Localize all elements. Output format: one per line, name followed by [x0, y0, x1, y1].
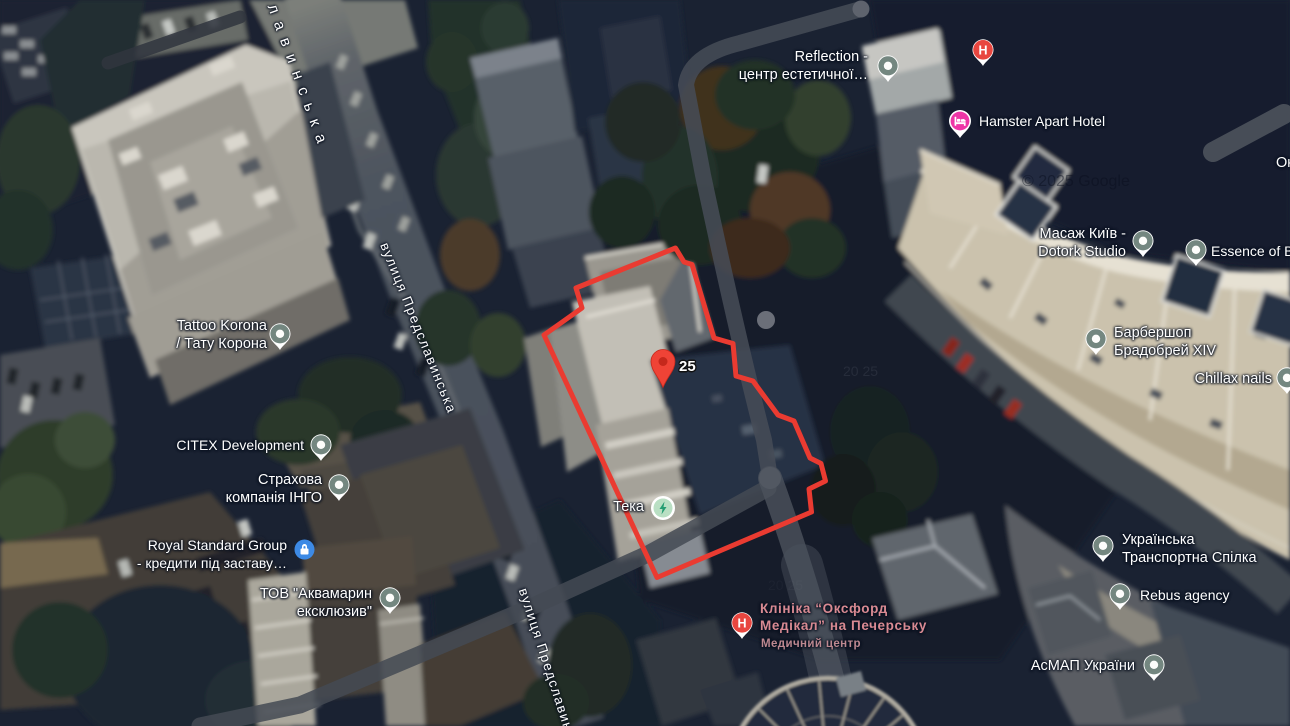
svg-text:© 2025 Google: © 2025 Google — [1022, 173, 1130, 190]
svg-text:H: H — [978, 43, 987, 57]
svg-text:20 25: 20 25 — [768, 577, 803, 593]
svg-text:H: H — [737, 616, 746, 630]
svg-text:20 25: 20 25 — [843, 363, 878, 379]
